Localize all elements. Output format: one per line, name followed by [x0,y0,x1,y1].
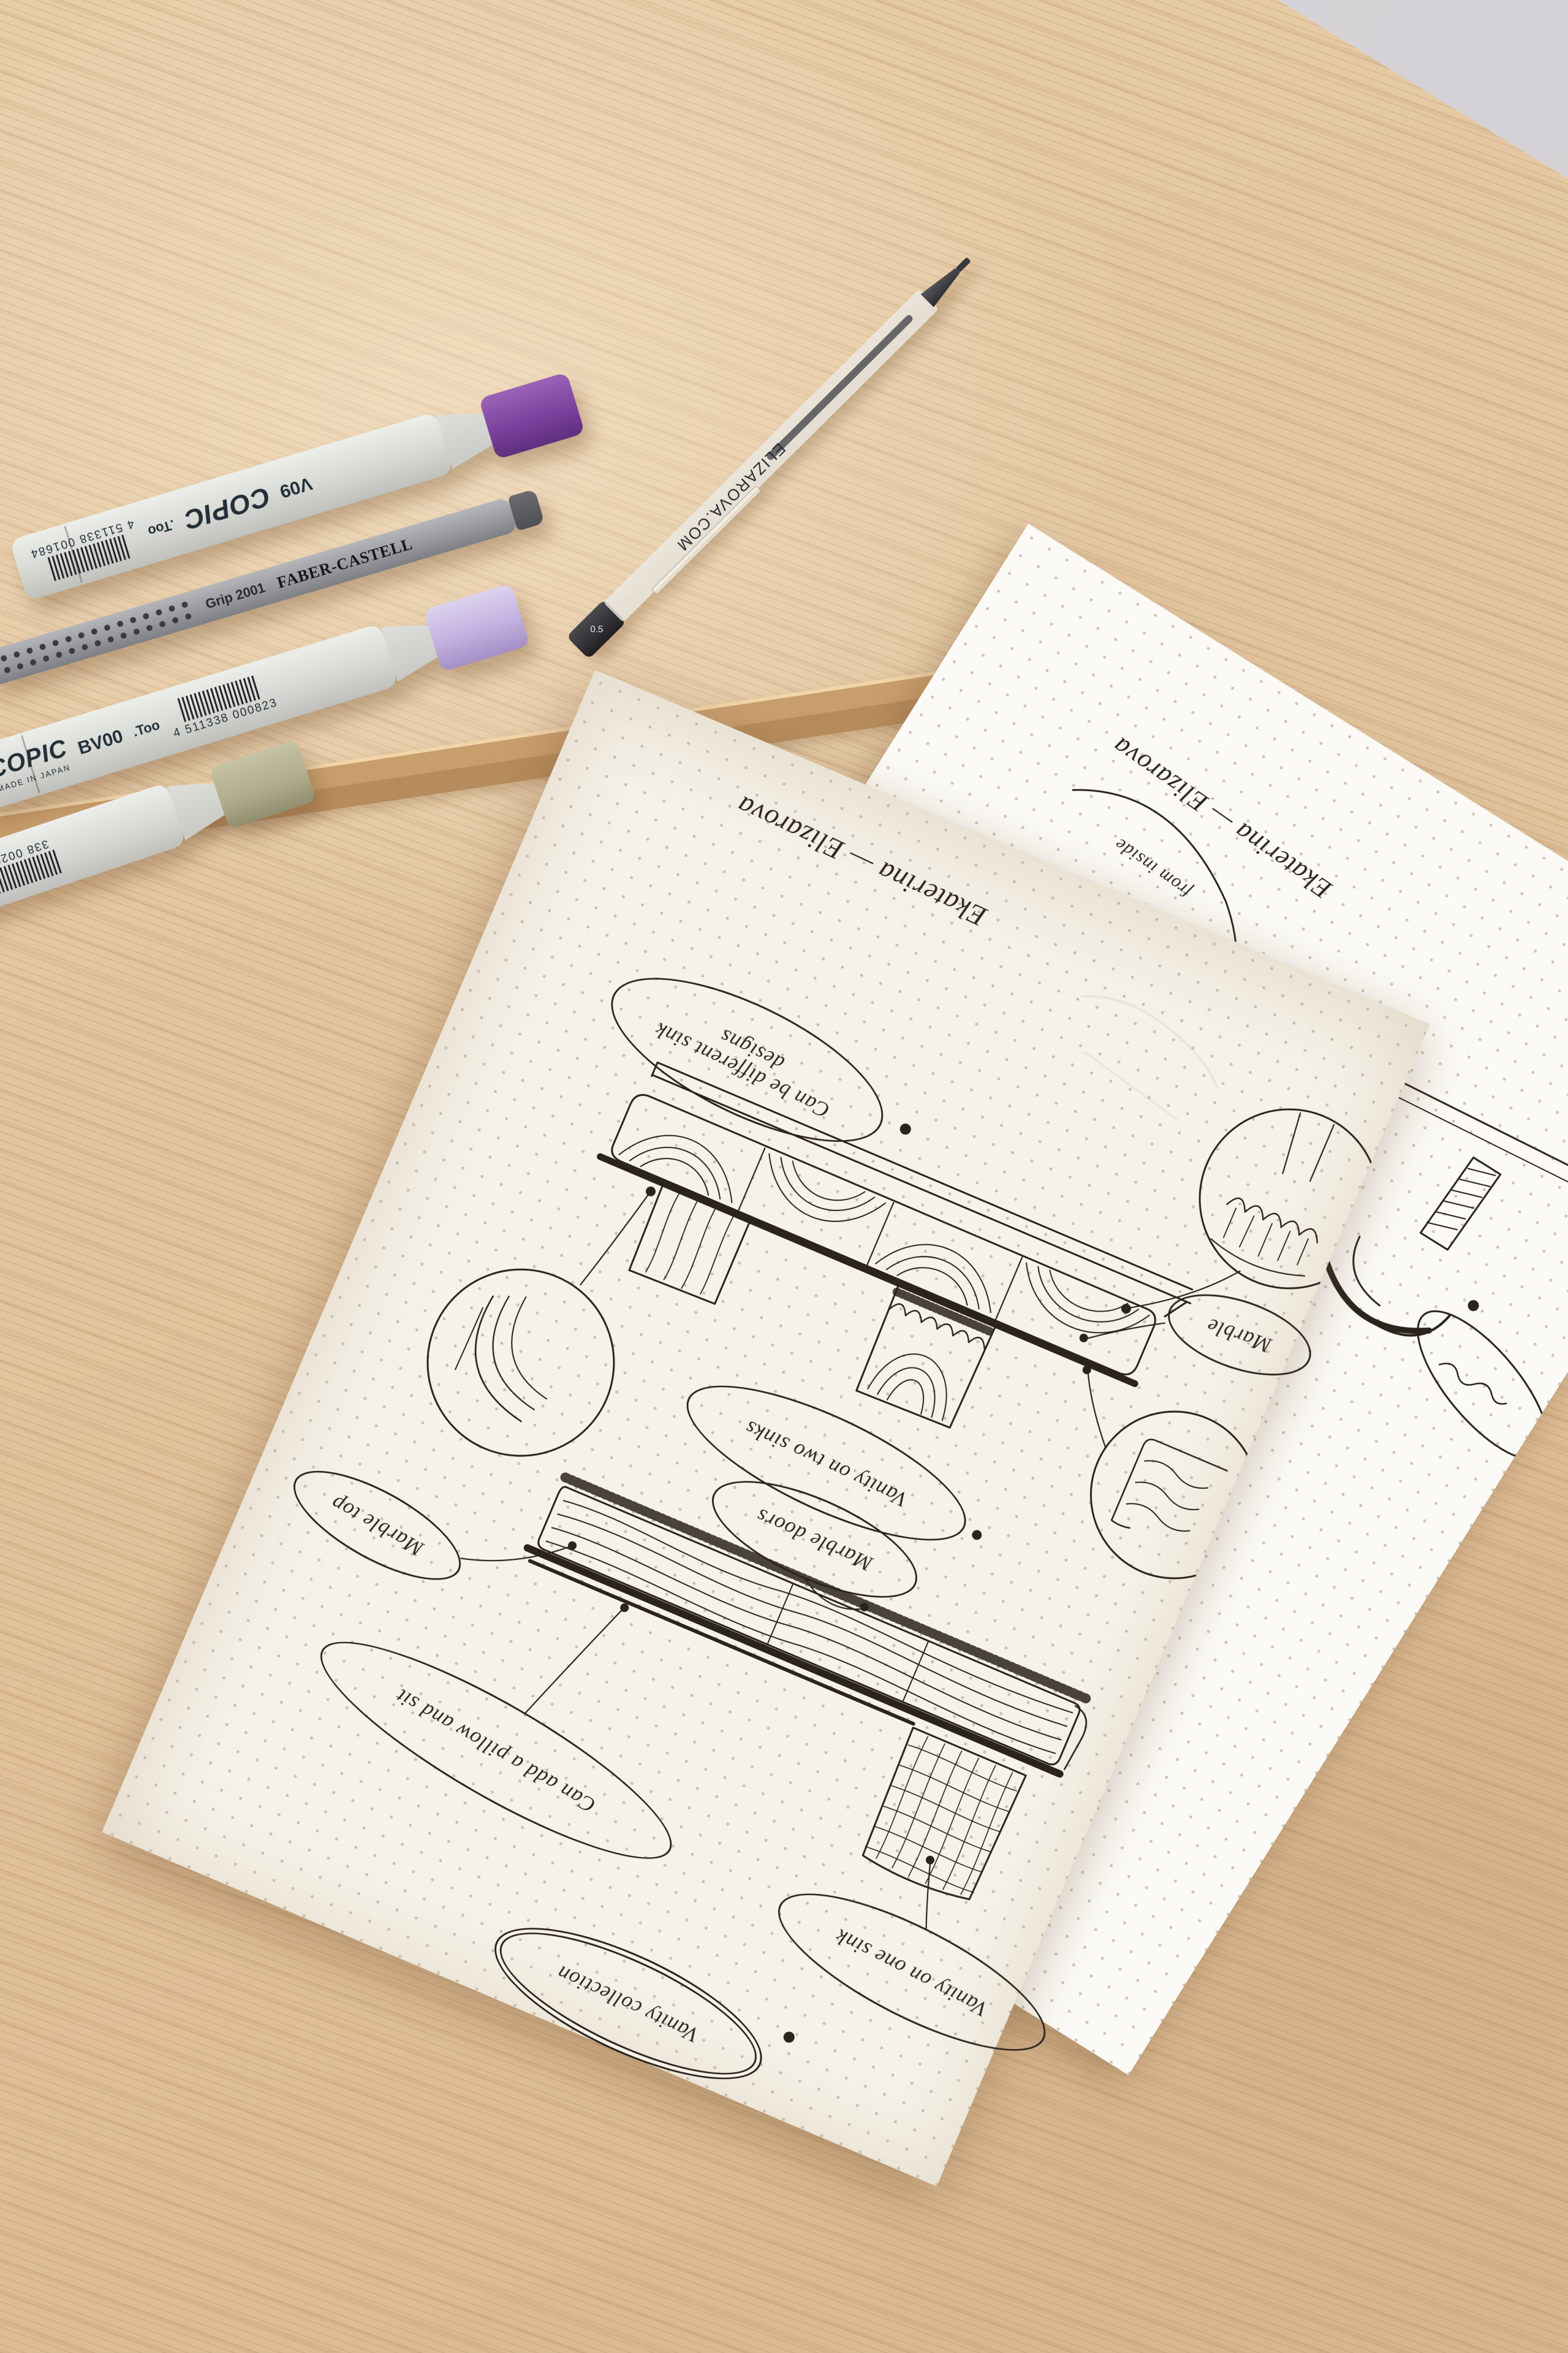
pen-tip-point [955,257,971,272]
pencil-model: Grip 2001 [203,580,267,612]
series-label: .Too [146,516,176,539]
brand-logo: COPIC [180,481,274,536]
faucet-stem [1420,1155,1500,1252]
leader-dot [1466,1298,1481,1313]
series-label: .Too [131,717,162,740]
color-code: BV00 [75,726,126,759]
corner-detail-circle [399,1137,687,1485]
label-text: Marble [1204,1313,1274,1356]
photo-scene: Ekaterina — Elizarova from inside [0,0,1568,2353]
color-code: V09 [277,473,314,502]
pen-tip-size: 0.5 [590,624,603,634]
barcode: 338 002001 [0,835,62,899]
